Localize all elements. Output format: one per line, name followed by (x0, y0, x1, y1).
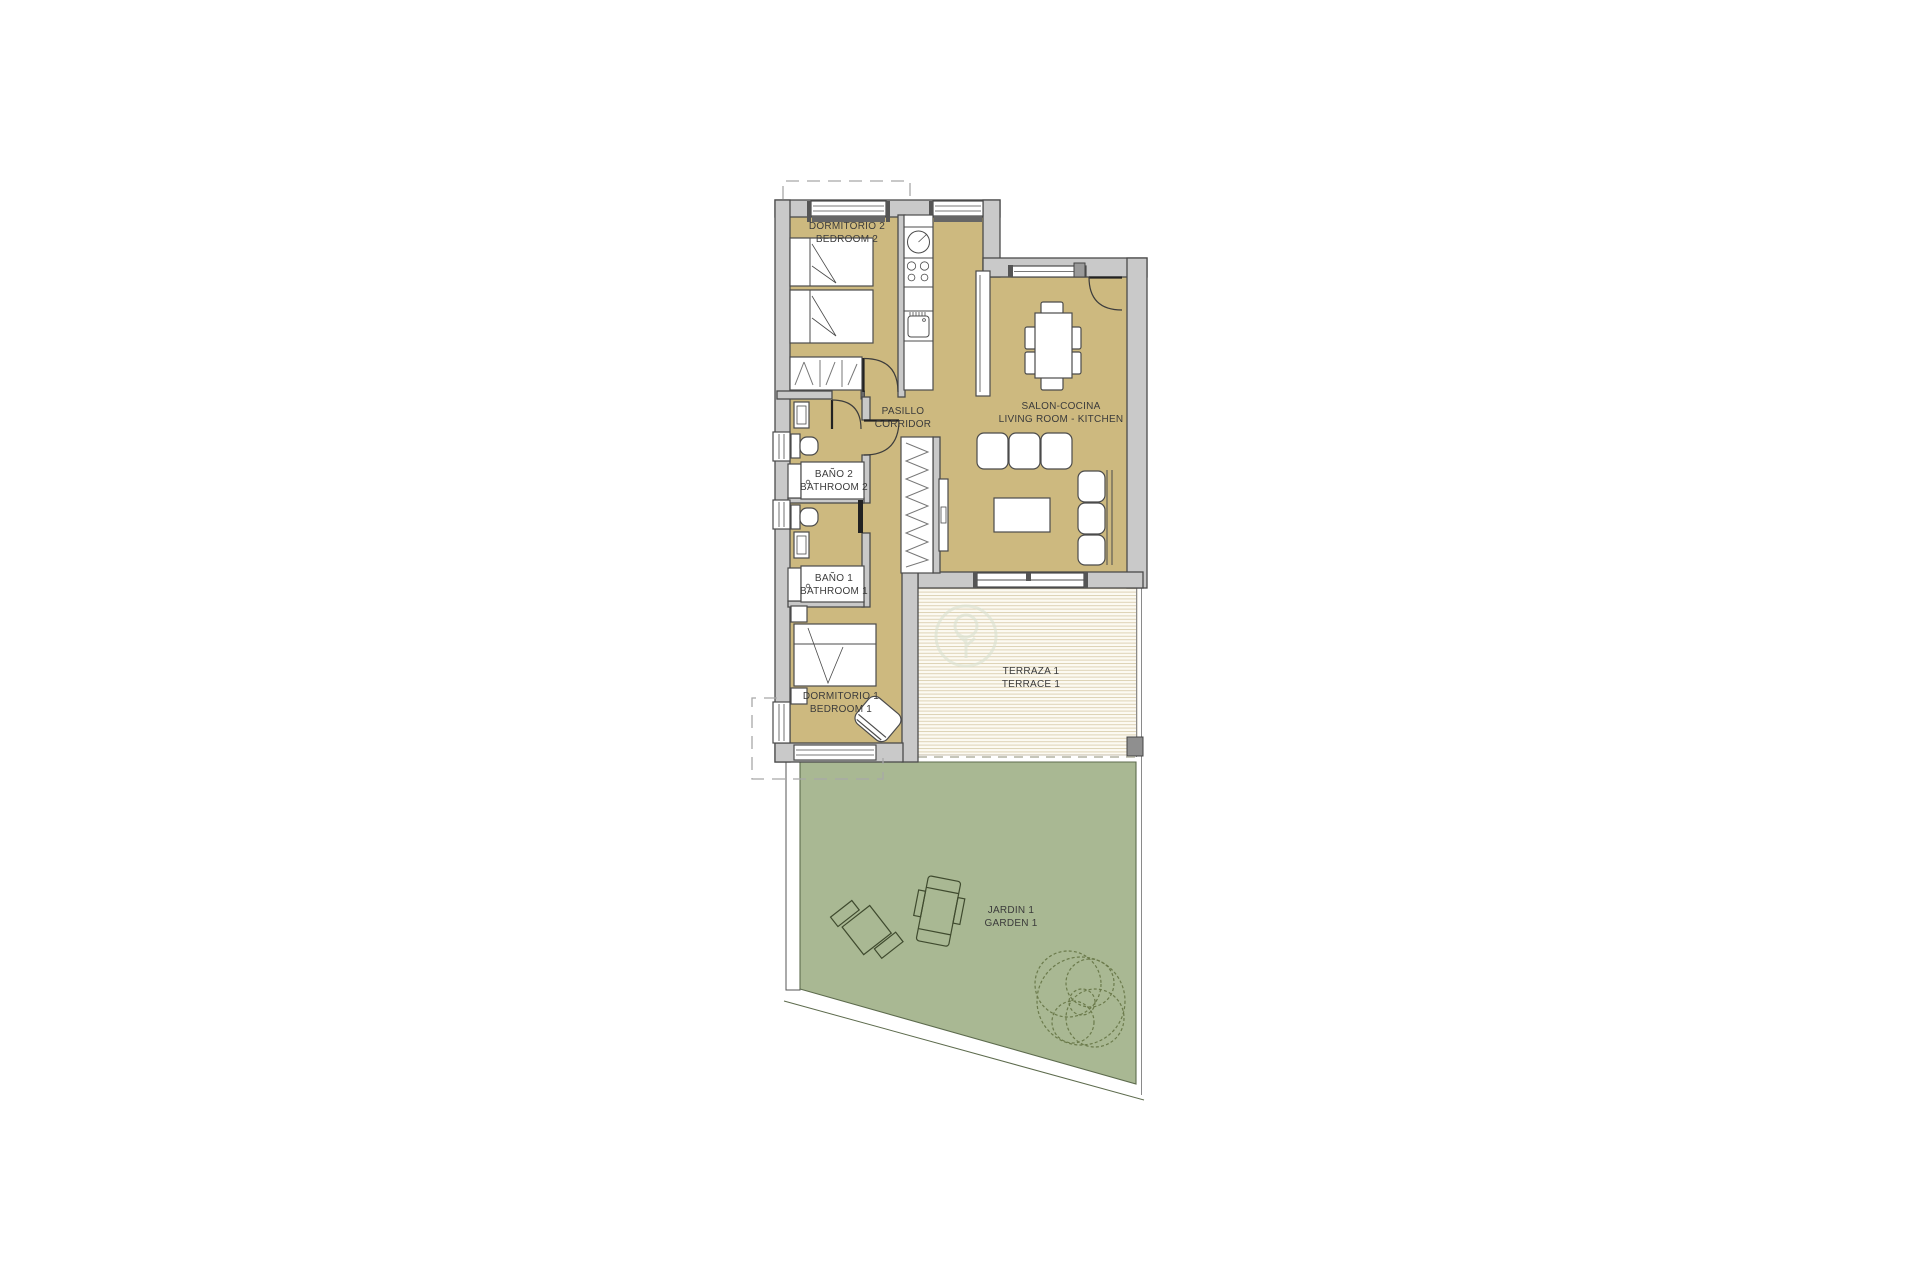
label-bedroom2-en: BEDROOM 2 (816, 234, 878, 245)
bed (794, 624, 876, 686)
coffee-table (994, 498, 1050, 532)
label-bath2: BAÑO 2 (815, 467, 853, 480)
sink-icon (794, 402, 809, 428)
window (773, 702, 790, 743)
window (773, 500, 790, 529)
label-bedroom2: DORMITORIO 2 (809, 221, 885, 232)
window (807, 201, 890, 222)
sliding-door (973, 572, 1088, 588)
label-bath1-en: BATHROOM 1 (800, 586, 868, 597)
label-bath2-en: BATHROOM 2 (800, 482, 868, 493)
bedroom-2 (790, 238, 873, 390)
toilet-icon (791, 434, 818, 458)
label-bedroom1: DORMITORIO 1 (803, 691, 879, 702)
floor-plan-page: DORMITORIO 2 BEDROOM 2 PASILLO CORRIDOR … (0, 0, 1920, 1280)
label-corridor-en: CORRIDOR (875, 419, 931, 430)
nightstand (791, 606, 807, 622)
window (794, 745, 876, 760)
label-living-en: LIVING ROOM - KITCHEN (999, 414, 1124, 425)
terrace-pillar (1127, 737, 1143, 756)
floor-plan-svg: DORMITORIO 2 BEDROOM 2 PASILLO CORRIDOR … (0, 0, 1920, 1280)
bed (790, 238, 873, 286)
wardrobe (790, 357, 862, 390)
window (929, 201, 983, 222)
label-terrace: TERRAZA 1 (1003, 666, 1060, 677)
dashed-overhang-top (783, 181, 910, 199)
bed (790, 290, 873, 343)
sink-icon (794, 532, 809, 558)
label-garden-en: GARDEN 1 (984, 918, 1037, 929)
corridor-wardrobe (901, 437, 933, 573)
toilet-icon (791, 505, 818, 529)
dining-table (1035, 313, 1072, 378)
shower-area (801, 462, 864, 499)
label-terrace-en: TERRACE 1 (1002, 679, 1061, 690)
tv-unit (939, 479, 948, 551)
label-corridor: PASILLO (882, 406, 925, 417)
sliding-door-leaf (858, 500, 863, 533)
label-living: SALON-COCINA (1021, 401, 1100, 412)
bathtub (788, 568, 801, 601)
kitchen-island (976, 271, 990, 396)
garden (784, 757, 1144, 1100)
garden-fence-left (786, 760, 800, 990)
label-garden: JARDIN 1 (988, 905, 1035, 916)
bathtub (788, 464, 801, 498)
label-bedroom1-en: BEDROOM 1 (810, 704, 872, 715)
window (773, 432, 790, 461)
label-bath1: BAÑO 1 (815, 571, 853, 584)
garden-lawn (800, 762, 1136, 1084)
